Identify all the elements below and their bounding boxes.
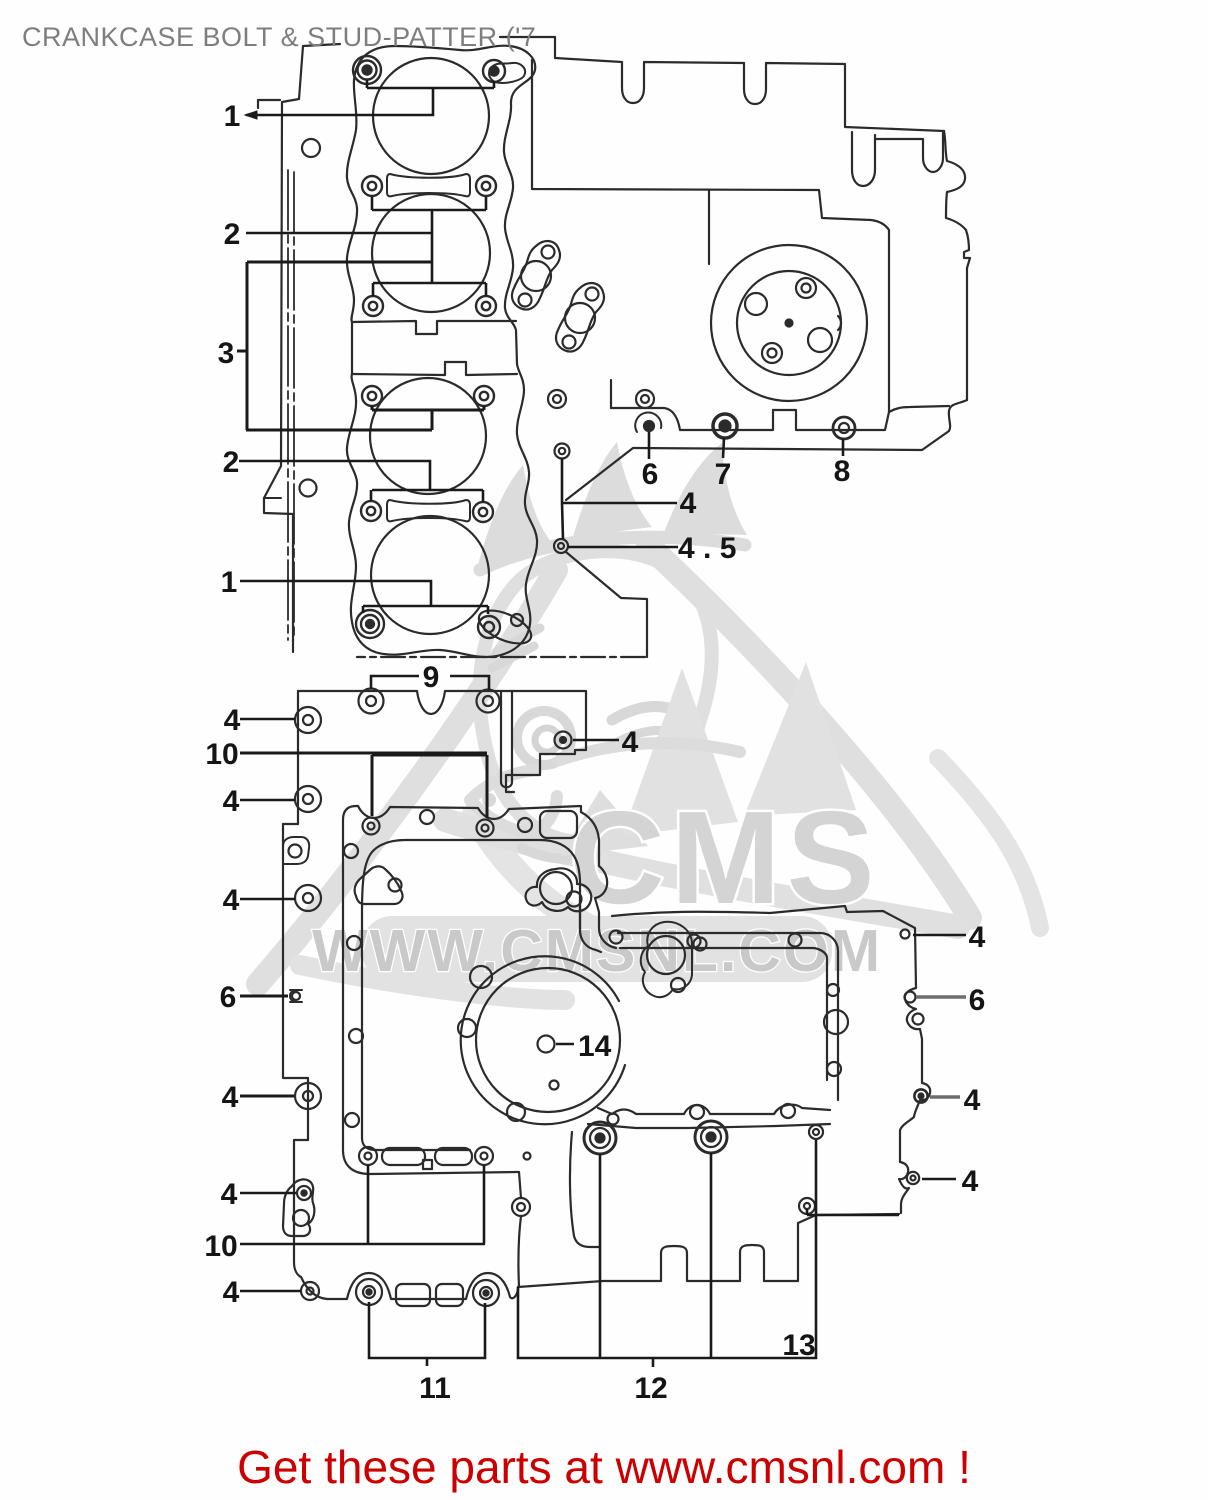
svg-text:14: 14 [578,1030,612,1063]
svg-text:7: 7 [715,458,732,491]
svg-text:4 . 5: 4 . 5 [678,532,736,565]
svg-text:Get these parts at www.cmsnl.c: Get these parts at www.cmsnl.com ! [237,1441,971,1493]
svg-text:2: 2 [224,218,241,251]
svg-text:4: 4 [222,1081,239,1114]
svg-text:4: 4 [962,1165,979,1198]
svg-text:CMS: CMS [569,784,880,931]
svg-text:10: 10 [204,1230,237,1263]
svg-text:6: 6 [642,458,659,491]
svg-text:1: 1 [221,566,238,599]
svg-text:4: 4 [969,921,986,954]
svg-text:6: 6 [969,984,986,1017]
svg-text:12: 12 [634,1372,667,1405]
svg-text:4: 4 [221,1178,238,1211]
svg-text:9: 9 [423,661,440,694]
svg-text:CRANKCASE BOLT & STUD-PATTER (: CRANKCASE BOLT & STUD-PATTER ('7 [22,22,536,52]
svg-text:4: 4 [964,1084,981,1117]
svg-text:6: 6 [220,981,237,1014]
svg-text:4: 4 [223,785,240,818]
svg-text:11: 11 [419,1372,451,1405]
svg-text:1: 1 [224,100,241,133]
svg-text:4: 4 [622,726,639,759]
svg-text:2: 2 [223,446,240,479]
svg-text:10: 10 [205,738,238,771]
svg-text:4: 4 [224,704,241,737]
svg-text:4: 4 [223,884,240,917]
svg-text:4: 4 [680,487,697,520]
svg-text:3: 3 [218,337,235,370]
svg-text:13: 13 [782,1329,815,1362]
svg-text:8: 8 [834,455,851,488]
svg-text:4: 4 [223,1276,240,1309]
